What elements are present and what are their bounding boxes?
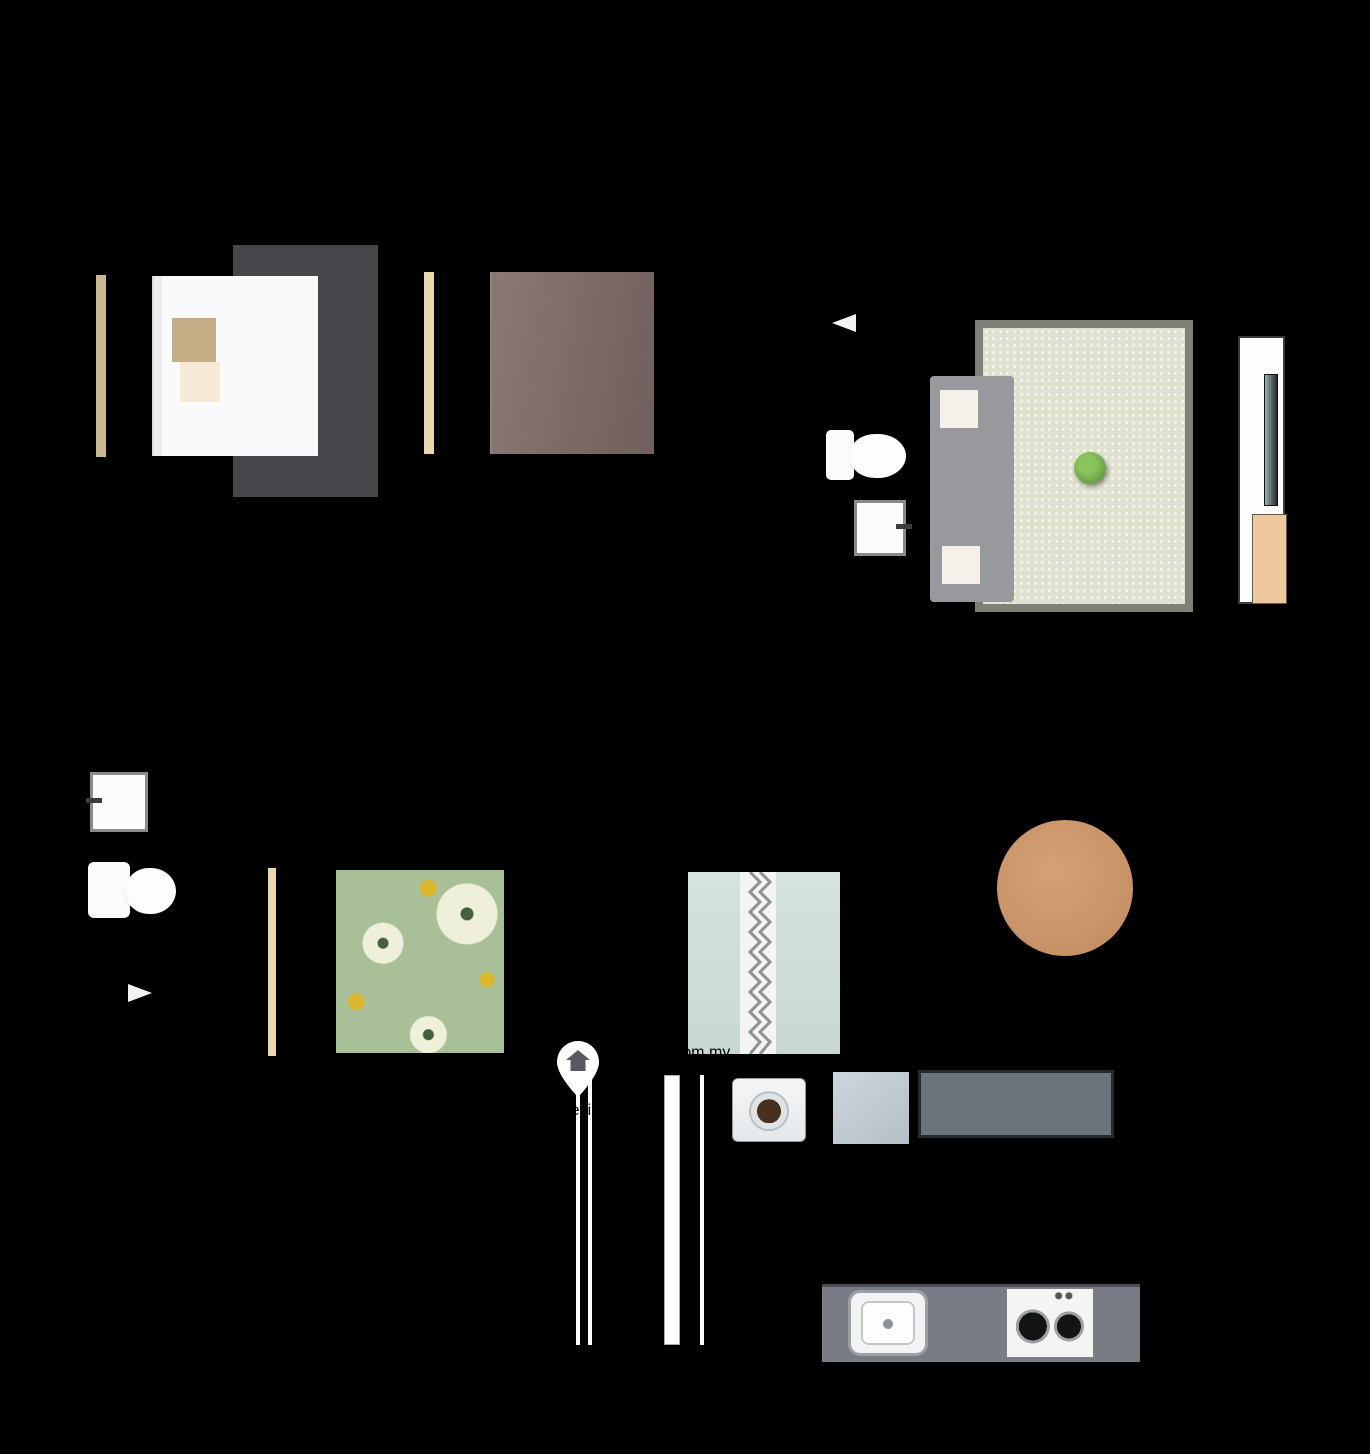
ac-label-bottom: A/C bbox=[593, 1197, 653, 1215]
yard-door-arc bbox=[725, 1173, 808, 1258]
bedroom-2-window bbox=[480, 170, 690, 196]
bed-pillow bbox=[107, 369, 153, 449]
wall bbox=[74, 727, 168, 751]
bedroom-3-door-arc bbox=[462, 748, 553, 839]
nightstand bbox=[860, 822, 908, 872]
accent-pillow bbox=[172, 318, 216, 362]
nightstand bbox=[274, 822, 324, 876]
ac-balcony-divider bbox=[903, 186, 906, 270]
tv-icon bbox=[1264, 374, 1278, 506]
kitchen-sink bbox=[848, 1290, 928, 1356]
watermark-brand: iProperty.com.my bbox=[607, 1044, 730, 1062]
wall bbox=[550, 1345, 830, 1362]
wall bbox=[565, 748, 590, 1053]
dining-table bbox=[997, 820, 1133, 956]
toilet-tank bbox=[88, 862, 130, 918]
ac-vent bbox=[770, 272, 840, 288]
nightstand bbox=[424, 456, 474, 518]
balcony-door-arc bbox=[920, 192, 995, 268]
bedroom-3-wardrobe bbox=[276, 748, 434, 812]
wall bbox=[398, 195, 424, 620]
balcony-parapet bbox=[908, 52, 1288, 70]
wall bbox=[903, 268, 930, 613]
floor-plan: BALCONY A/C A/C iProperty.com.my Kevin L… bbox=[0, 0, 1370, 1454]
wall bbox=[1281, 1268, 1297, 1378]
bedroom-4-wardrobe bbox=[740, 746, 905, 810]
bathroom-1-window bbox=[145, 1052, 229, 1072]
bedroom-2-wardrobe bbox=[428, 525, 602, 595]
bedroom-3-duvet-floral bbox=[336, 870, 504, 1053]
sofa-pillow bbox=[942, 546, 980, 584]
living-sliding-door bbox=[920, 268, 1240, 290]
shower-partition bbox=[762, 383, 903, 386]
bedroom-2-duvet bbox=[490, 272, 654, 454]
wall bbox=[723, 593, 772, 618]
sink-faucet bbox=[86, 798, 102, 803]
sink-faucet bbox=[896, 524, 912, 529]
bed-pillow bbox=[436, 366, 488, 448]
bedroom-1-door-leaf bbox=[313, 708, 405, 716]
wall bbox=[744, 168, 762, 613]
bed-pillow bbox=[840, 880, 896, 960]
bed-pillow bbox=[107, 283, 153, 363]
yard-door-leaf bbox=[801, 1173, 809, 1258]
bathroom-2-vent-window bbox=[878, 292, 906, 372]
egg-chair bbox=[1026, 552, 1118, 642]
nightstand bbox=[96, 212, 144, 274]
bedroom-3-window bbox=[345, 1052, 491, 1072]
bathroom-2-door-arc bbox=[772, 517, 848, 592]
ac-louver bbox=[756, 162, 906, 186]
bedroom-4-door-arc bbox=[615, 748, 706, 839]
wall bbox=[1128, 1248, 1160, 1268]
bedroom-1-wardrobe bbox=[90, 540, 156, 728]
location-pin-house-icon bbox=[556, 1040, 600, 1098]
ac-label-top: A/C bbox=[800, 224, 860, 242]
sofa-pillow bbox=[940, 390, 978, 428]
wall bbox=[410, 593, 633, 618]
nightstand bbox=[424, 214, 474, 276]
bathroom-2-door-leaf bbox=[769, 517, 777, 594]
balcony-door-leaf bbox=[917, 192, 925, 270]
accent-pillow bbox=[180, 362, 220, 402]
wall bbox=[1238, 266, 1288, 290]
plant-icon bbox=[1074, 452, 1106, 484]
bathroom-1-door-arc bbox=[168, 748, 245, 824]
toilet-bowl bbox=[850, 434, 906, 478]
bedroom-1-door-arc bbox=[313, 625, 405, 717]
watermark-overlay bbox=[548, 1016, 1370, 1180]
wall bbox=[1262, 1248, 1308, 1268]
bedroom-3-door-leaf bbox=[546, 748, 554, 839]
bed-pillow bbox=[281, 962, 335, 1042]
bed-pillow bbox=[281, 880, 335, 960]
sink-drain bbox=[883, 1319, 893, 1329]
egg-chair bbox=[1032, 298, 1124, 388]
bedroom-1-window bbox=[140, 170, 350, 196]
bathroom-1-door-leaf bbox=[240, 748, 248, 824]
bathroom-1-vent-window bbox=[86, 955, 112, 1055]
side-table bbox=[930, 606, 988, 656]
stove bbox=[1006, 1288, 1094, 1358]
entry-vestibule-floor bbox=[1148, 1268, 1281, 1376]
side-table bbox=[930, 320, 988, 370]
bed-pillow bbox=[436, 280, 488, 362]
bedroom-2-door-arc bbox=[633, 505, 720, 595]
balcony-label: BALCONY bbox=[1027, 154, 1187, 172]
bedroom-1-duvet bbox=[152, 276, 318, 456]
bedroom-4-door-leaf bbox=[612, 748, 620, 839]
shower-partition bbox=[120, 941, 253, 944]
watermark-agent: Kevin Lee bbox=[560, 1102, 631, 1120]
toilet-bowl bbox=[126, 868, 176, 914]
shower-head-icon bbox=[832, 314, 856, 332]
tv-cabinet bbox=[1252, 514, 1287, 604]
bedroom-2-door-leaf bbox=[712, 505, 720, 595]
shower-head-icon bbox=[128, 984, 152, 1002]
nightstand bbox=[96, 458, 144, 520]
